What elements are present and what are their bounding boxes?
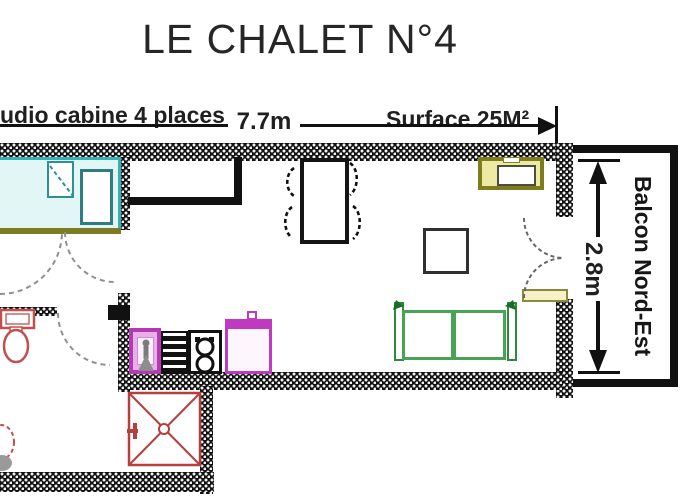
corner-fixture-base — [0, 455, 12, 471]
bathroom-door-arc — [58, 313, 110, 365]
cabin-threshold — [0, 228, 121, 234]
floorplan-canvas: LE CHALET N°4 udio cabine 4 places Surfa… — [0, 0, 700, 500]
dining-table — [300, 158, 349, 244]
dim-height-tbar-bottom — [578, 371, 620, 374]
wall-bottom — [118, 372, 563, 390]
radiator — [522, 289, 568, 302]
cabin-door-arc-right — [65, 232, 115, 282]
coffee-table — [423, 228, 469, 274]
chair-arc-right-top — [350, 163, 357, 195]
bed-fold-rect — [47, 161, 74, 198]
shower-handle-horizontal — [127, 429, 138, 433]
toilet — [4, 330, 28, 362]
dim-height-arrow-down — [589, 350, 607, 373]
wall-bathroom-bottom — [0, 472, 214, 492]
balcony-wall-top — [573, 145, 678, 153]
shower-drain — [159, 424, 169, 434]
dim-width-label: 7.7m — [228, 108, 300, 136]
shower-diagonal-1 — [129, 393, 200, 465]
kitchen-drainer — [161, 331, 188, 374]
sofa-armrest-right — [507, 302, 517, 361]
dim-width-tick — [555, 106, 558, 148]
dim-height-line-upper — [596, 184, 600, 237]
dim-width-line-right — [300, 124, 540, 127]
bed-pillow-rect — [80, 169, 113, 225]
sofa-cushion-left — [402, 310, 454, 360]
kitchen-dishwasher-tab — [247, 311, 257, 320]
dim-height-arrow-up — [589, 161, 607, 184]
chair-arc-left-top — [287, 168, 294, 196]
kitchen-stove — [188, 330, 222, 374]
balcony-wall-right — [670, 145, 678, 387]
sofa-cushion-right — [453, 310, 506, 360]
dim-width-line-left — [0, 124, 228, 127]
corner-fixture — [0, 425, 14, 459]
page-title: LE CHALET N°4 — [60, 16, 540, 63]
balcony-door-arc-upper — [524, 218, 564, 258]
dim-height-line-lower — [596, 301, 600, 353]
closet-wall-right — [234, 157, 242, 205]
shower-diagonal-2 — [129, 393, 200, 465]
tv-unit-tab — [503, 157, 520, 163]
kitchen-dishwasher-top — [225, 319, 272, 329]
chair-arc-right-bottom — [353, 206, 360, 239]
wall-right-upper — [556, 143, 573, 217]
wall-door-pier — [108, 305, 130, 320]
balcony-label: Balcon Nord-Est — [620, 158, 656, 374]
shower-tray — [129, 393, 200, 465]
kitchen-sink-inner — [137, 337, 154, 365]
toilet-tank — [10, 327, 22, 333]
tv-unit-inner — [497, 165, 536, 186]
cabin-door-arc-left — [0, 232, 62, 294]
chair-arc-left-bottom — [285, 207, 292, 238]
balcony-wall-bottom — [573, 379, 678, 387]
shower-handle-vertical — [133, 423, 137, 439]
closet-wall-bottom — [128, 197, 242, 205]
wall-bathroom-top — [0, 307, 57, 316]
surface-label: Surface 25M² — [386, 106, 529, 133]
dim-height-label: 2.8m — [577, 235, 607, 303]
